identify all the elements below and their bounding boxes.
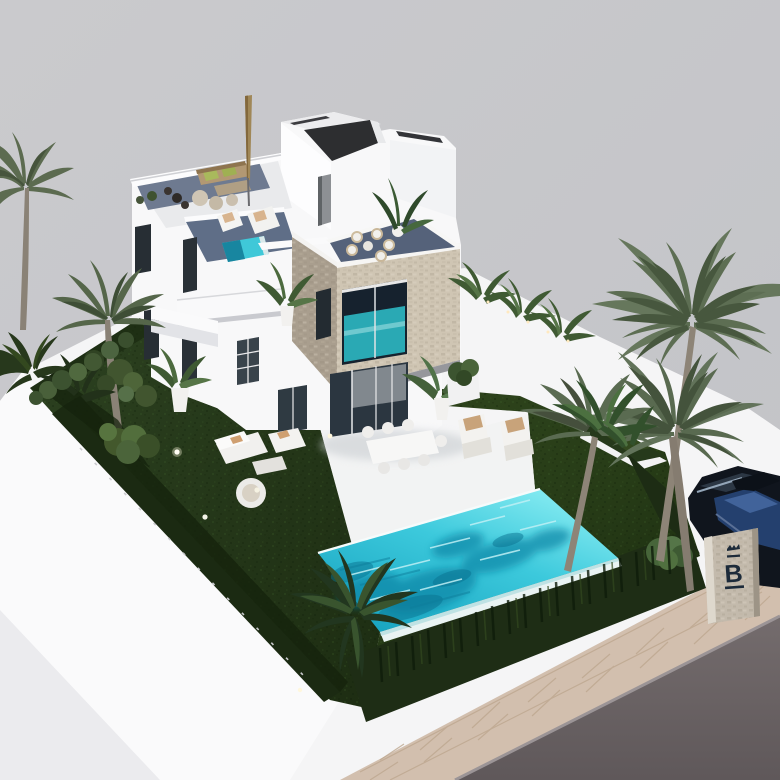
svg-text:B: B bbox=[724, 559, 744, 588]
